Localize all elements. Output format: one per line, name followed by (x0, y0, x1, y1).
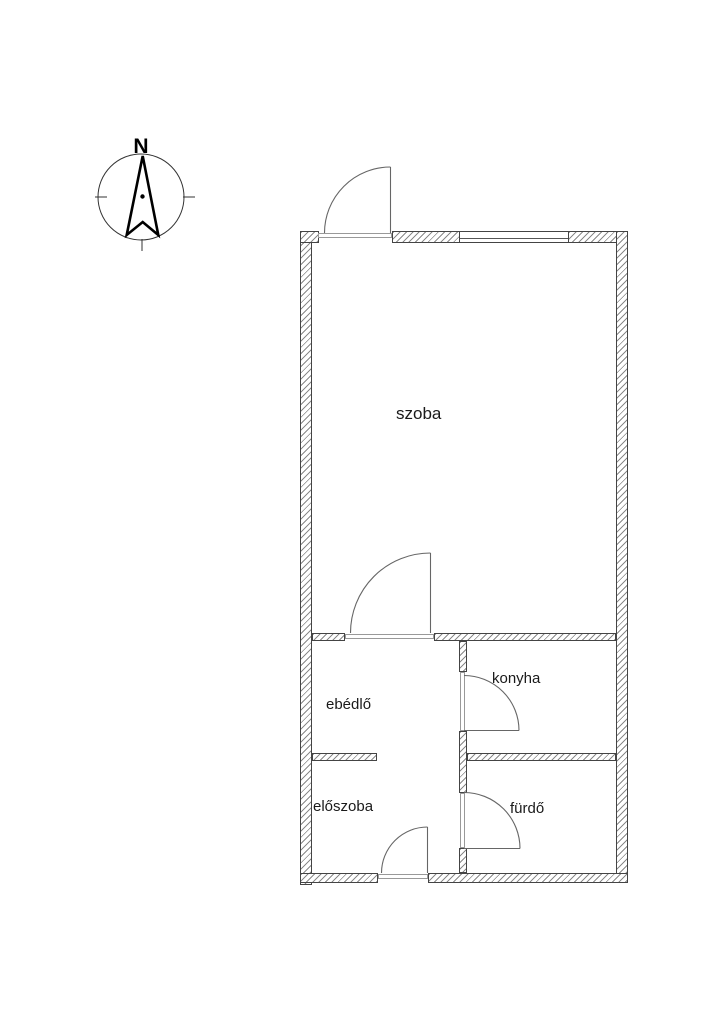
north-label: N (129, 135, 153, 159)
room-label-furdo: fürdő (510, 800, 544, 817)
floor-plan-canvas: N (0, 0, 723, 1024)
entry-door-sill (378, 874, 428, 879)
interior-wall-szoba-left (312, 633, 345, 641)
terrace-door-sill (318, 233, 392, 238)
szoba-door-sill (345, 634, 434, 639)
room-label-ebedlo: ebédlő (326, 696, 371, 713)
furdo-door-sill (460, 793, 465, 848)
room-label-eloszoba: előszoba (313, 798, 373, 815)
room-label-szoba: szoba (396, 404, 441, 424)
compass-rose (90, 150, 200, 255)
window-glass-line (460, 238, 568, 239)
exterior-wall-top-mid (392, 231, 460, 243)
exterior-wall-bottom-left (300, 873, 378, 883)
exterior-wall-bottom-right (428, 873, 628, 883)
szoba-door-icon (351, 553, 431, 633)
exterior-wall-left (300, 231, 312, 885)
interior-wall-vertical-lower (459, 848, 467, 873)
interior-wall-konyha-furdo (467, 753, 616, 761)
compass-center-dot (140, 194, 144, 198)
window-top (459, 231, 569, 243)
terrace-door-icon (325, 167, 391, 233)
room-label-konyha: konyha (492, 670, 540, 687)
exterior-wall-top-left-stub (300, 231, 319, 243)
interior-wall-vertical-upper (459, 641, 467, 672)
konyha-door-sill (460, 672, 465, 731)
interior-wall-ebedlo-eloszoba (312, 753, 377, 761)
entry-door-icon (382, 827, 428, 873)
interior-wall-szoba-right (434, 633, 616, 641)
exterior-wall-right (616, 231, 628, 883)
interior-wall-vertical-mid (459, 731, 467, 793)
